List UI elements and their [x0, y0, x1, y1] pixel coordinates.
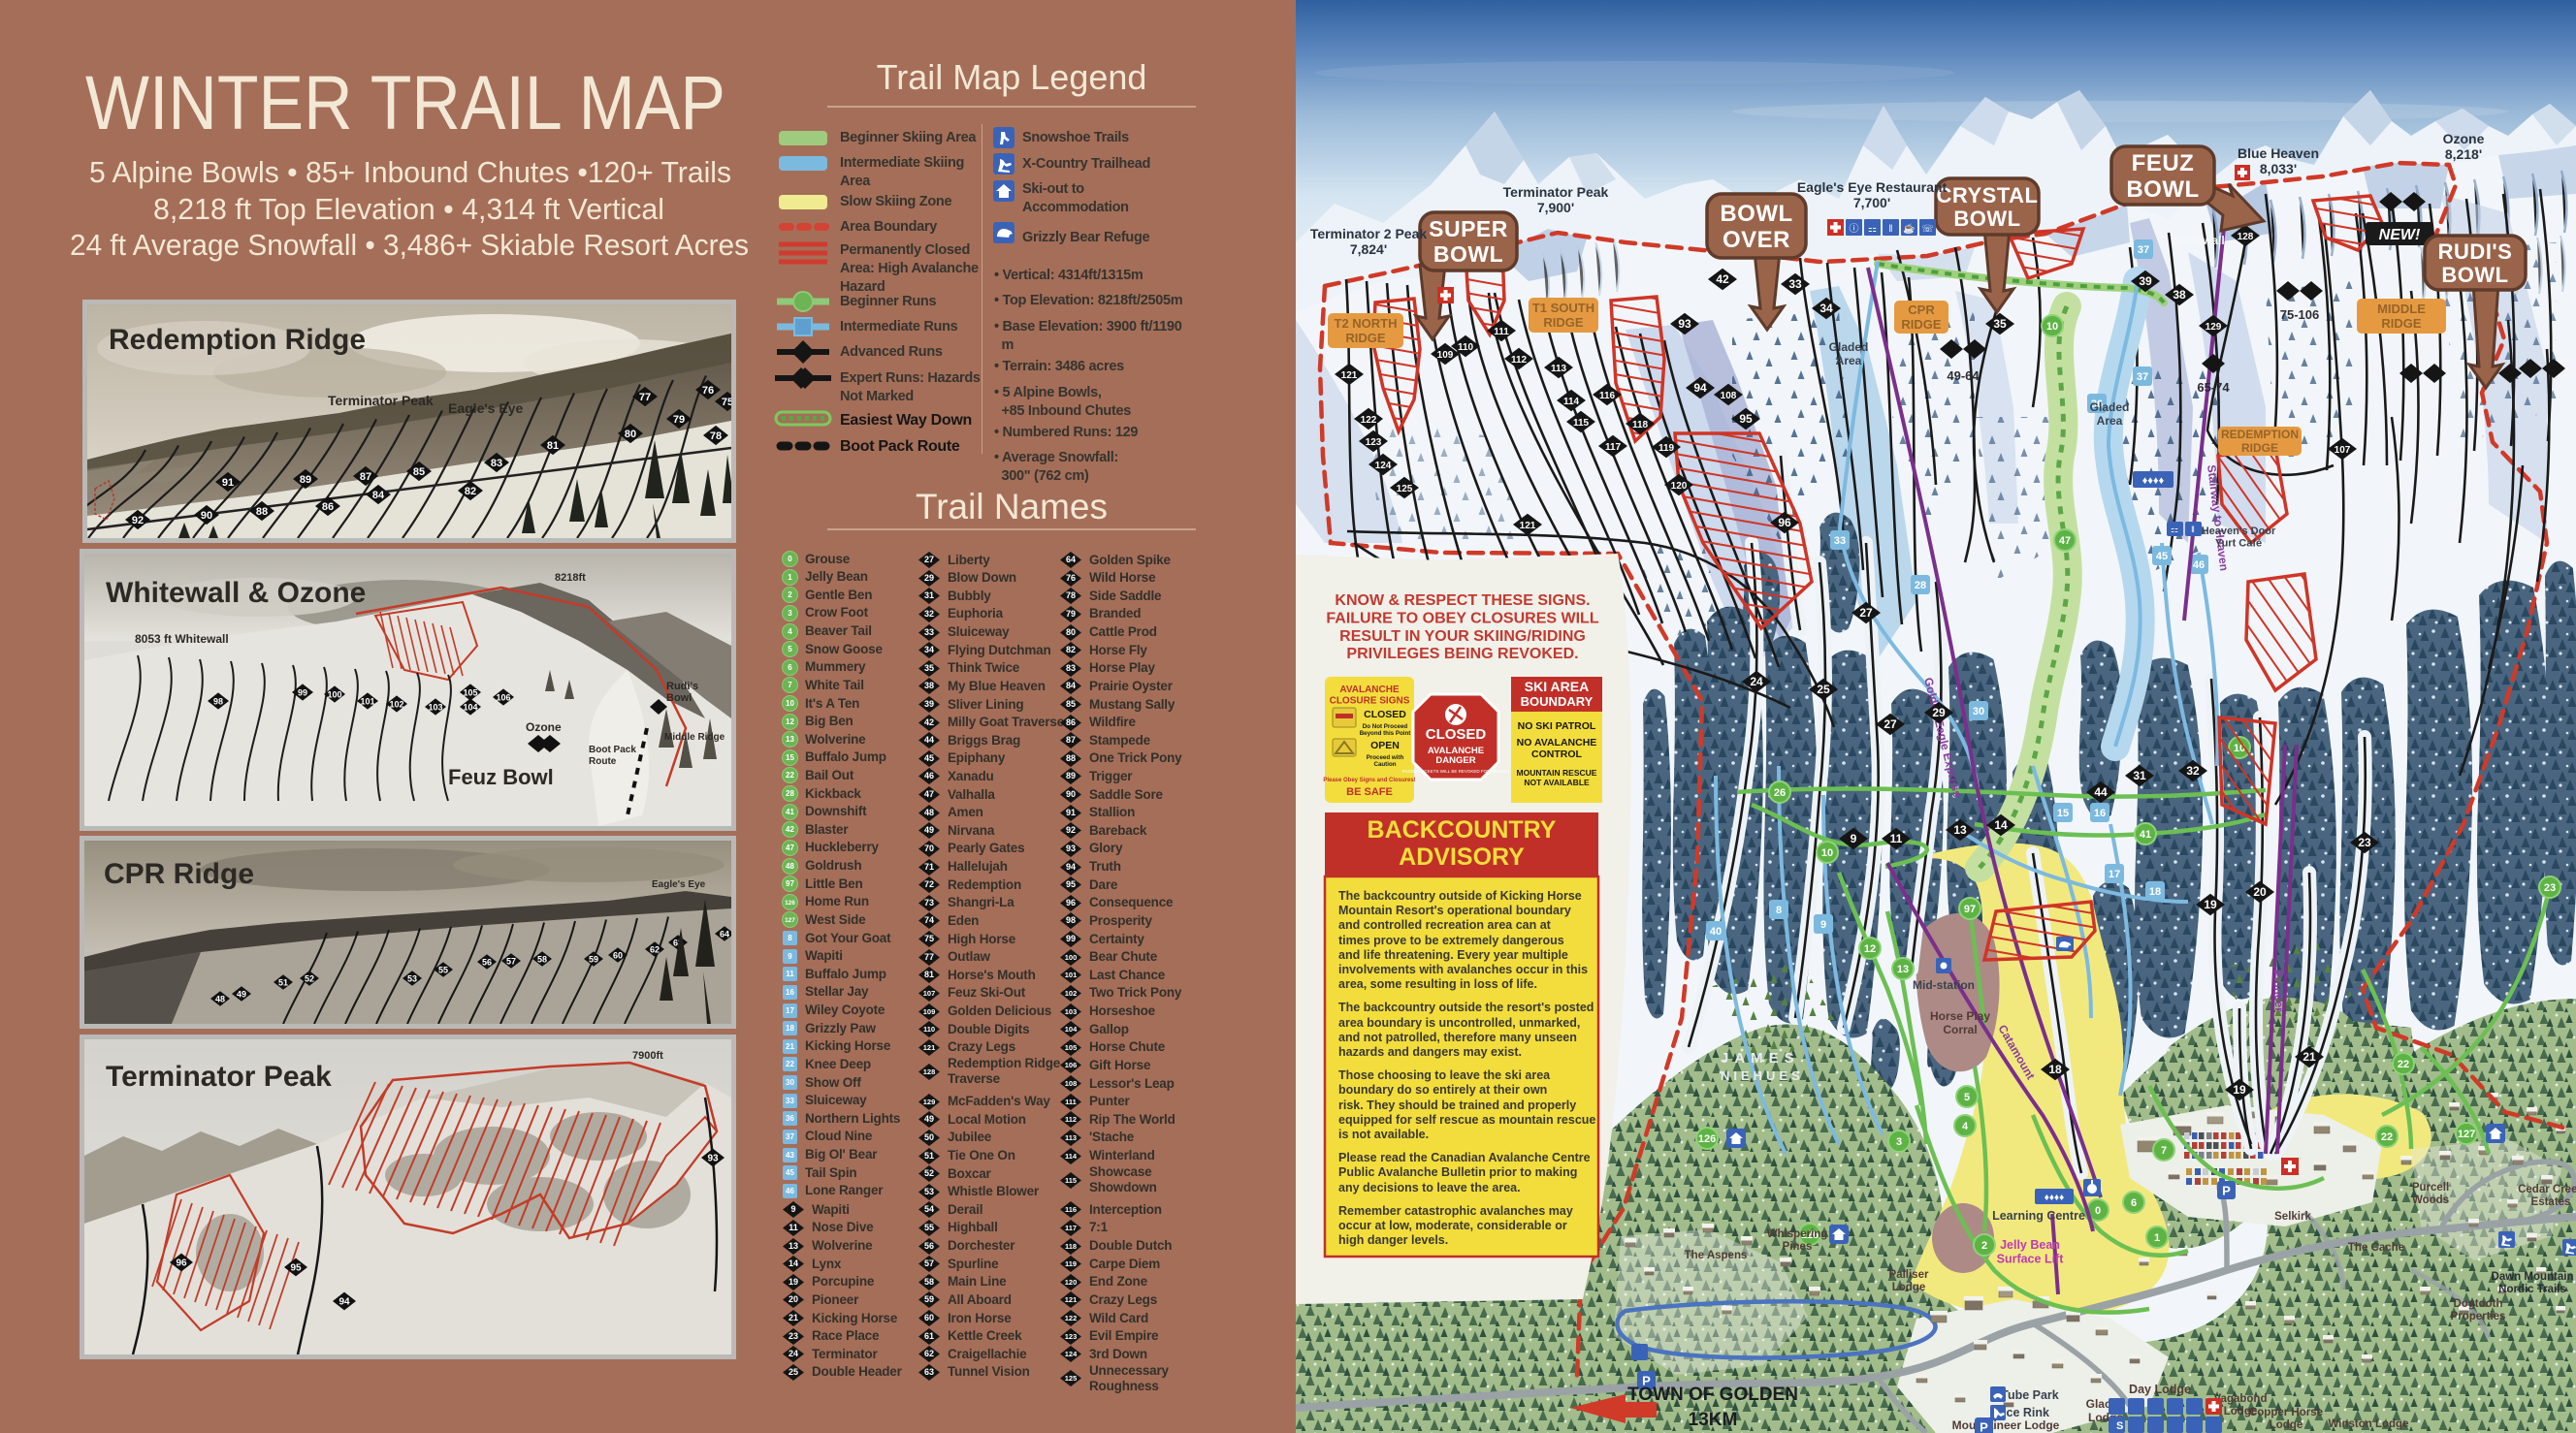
svg-text:Beyond this Point: Beyond this Point — [1360, 730, 1411, 737]
svg-text:125: 125 — [1065, 1375, 1078, 1384]
svg-text:T2 NORTH: T2 NORTH — [1335, 316, 1398, 331]
svg-text:27: 27 — [924, 555, 934, 564]
svg-text:BE SAFE: BE SAFE — [1346, 786, 1393, 798]
svg-text:80: 80 — [625, 429, 636, 440]
svg-text:Eagle's Eye: Eagle's Eye — [448, 400, 523, 416]
svg-text:65-74: 65-74 — [2197, 380, 2230, 395]
svg-text:29: 29 — [924, 573, 934, 583]
svg-text:89: 89 — [1066, 772, 1076, 781]
svg-text:Eagle's Eye Restaurant: Eagle's Eye Restaurant — [1797, 179, 1948, 195]
svg-text:8: 8 — [788, 934, 792, 942]
svg-text:Whitewall: Whitewall — [2171, 234, 2224, 247]
svg-text:NIEHUES: NIEHUES — [1721, 1068, 1804, 1083]
svg-text:45: 45 — [2156, 551, 2168, 562]
svg-text:106: 106 — [1065, 1062, 1078, 1070]
svg-text:91: 91 — [1066, 808, 1076, 817]
svg-text:ADVISORY: ADVISORY — [1399, 844, 1525, 871]
svg-text:BOWL: BOWL — [1720, 201, 1792, 227]
svg-text:64: 64 — [1066, 555, 1076, 564]
svg-text:high danger levels.: high danger levels. — [1338, 1233, 1448, 1247]
svg-text:123: 123 — [1366, 437, 1382, 448]
svg-text:82: 82 — [1066, 645, 1076, 654]
svg-text:CRYSTAL: CRYSTAL — [1937, 183, 2039, 207]
svg-text:29: 29 — [1932, 706, 1946, 719]
svg-text:21: 21 — [2302, 1050, 2316, 1064]
svg-text:114: 114 — [1563, 397, 1580, 407]
svg-text:115: 115 — [1065, 1176, 1077, 1185]
svg-text:115: 115 — [1573, 418, 1590, 429]
svg-text:57: 57 — [506, 956, 516, 966]
svg-text:NO AVALANCHE: NO AVALANCHE — [1517, 737, 1597, 748]
svg-text:126: 126 — [785, 900, 795, 907]
svg-text:Remember catastrophic avalanch: Remember catastrophic avalanches may — [1338, 1204, 1573, 1218]
svg-text:27: 27 — [1859, 606, 1873, 620]
svg-text:85: 85 — [1066, 699, 1076, 709]
svg-text:18: 18 — [786, 1024, 794, 1033]
svg-text:⚏: ⚏ — [1868, 224, 1877, 235]
svg-text:107: 107 — [923, 989, 936, 998]
svg-text:Heaven's Door: Heaven's Door — [2202, 525, 2276, 537]
svg-text:Horse Play: Horse Play — [1930, 1009, 1990, 1023]
svg-text:24 ft Average Snowfall • 3,486: 24 ft Average Snowfall • 3,486+ Skiable … — [70, 228, 749, 262]
svg-text:and not patrolled, therefore m: and not patrolled, therefore many unseen — [1338, 1031, 1577, 1044]
svg-text:84: 84 — [372, 490, 385, 501]
svg-text:32: 32 — [2186, 764, 2200, 778]
svg-text:Blue Heaven: Blue Heaven — [2238, 145, 2319, 161]
svg-text:Tube Park: Tube Park — [2001, 1388, 2059, 1402]
svg-text:16: 16 — [2094, 808, 2106, 819]
svg-text:Please Obey Signs and Closures: Please Obey Signs and Closures! — [1323, 778, 1415, 783]
svg-text:42: 42 — [786, 825, 794, 834]
svg-text:BOWL: BOWL — [2126, 176, 2199, 203]
svg-text:21: 21 — [786, 1042, 794, 1051]
svg-text:123: 123 — [1065, 1332, 1078, 1341]
svg-text:The backcountry outside of Kic: The backcountry outside of Kicking Horse — [1338, 889, 1582, 903]
svg-text:40: 40 — [1710, 926, 1722, 938]
svg-text:Corral: Corral — [1943, 1023, 1977, 1036]
svg-text:20: 20 — [789, 1295, 798, 1305]
svg-text:93: 93 — [707, 1154, 719, 1164]
svg-text:Pines: Pines — [1783, 1241, 1813, 1253]
svg-text:82: 82 — [465, 486, 476, 497]
svg-text:92: 92 — [1066, 825, 1076, 835]
svg-text:RIDGE: RIDGE — [1543, 315, 1584, 330]
svg-text:83: 83 — [1066, 663, 1076, 673]
svg-text:121: 121 — [1065, 1296, 1078, 1305]
svg-text:11: 11 — [1890, 832, 1903, 845]
svg-text:116: 116 — [1065, 1205, 1077, 1214]
svg-text:Terminator Peak: Terminator Peak — [1503, 184, 1609, 200]
svg-text:11: 11 — [786, 970, 794, 978]
svg-text:♦♦♦♦: ♦♦♦♦ — [2045, 1193, 2064, 1203]
svg-text:risk. They should be trained a: risk. They should be trained and properl… — [1338, 1099, 1576, 1112]
svg-text:27: 27 — [1884, 717, 1897, 731]
svg-text:10: 10 — [1821, 847, 1833, 859]
svg-text:boundary do so entirely at the: boundary do so entirely at their own — [1338, 1083, 1547, 1097]
svg-text:26: 26 — [1774, 787, 1786, 799]
svg-text:109: 109 — [1437, 350, 1454, 361]
svg-text:94: 94 — [1693, 381, 1707, 395]
svg-text:45: 45 — [924, 753, 934, 763]
svg-text:76: 76 — [702, 385, 714, 397]
svg-text:121: 121 — [1520, 521, 1536, 531]
svg-text:Terminator Peak: Terminator Peak — [106, 1061, 332, 1093]
svg-text:109: 109 — [923, 1007, 936, 1016]
svg-text:Properties: Properties — [2451, 1311, 2506, 1322]
svg-text:Public Avalanche Bulletin prio: Public Avalanche Bulletin prior to makin… — [1338, 1165, 1577, 1179]
svg-text:77: 77 — [924, 952, 934, 962]
svg-text:7,900': 7,900' — [1537, 200, 1574, 215]
svg-text:28: 28 — [1915, 580, 1926, 591]
svg-text:53: 53 — [407, 973, 417, 983]
svg-text:104: 104 — [463, 702, 477, 712]
svg-text:110: 110 — [1458, 342, 1474, 353]
svg-text:Dawn Mountain: Dawn Mountain — [2492, 1271, 2574, 1283]
svg-text:OVER: OVER — [1723, 227, 1790, 253]
svg-text:124: 124 — [1375, 461, 1392, 471]
svg-text:and life threatening. Every ye: and life threatening. Every year multipl… — [1338, 948, 1568, 962]
svg-text:equipped for self rescue as mo: equipped for self rescue as mountain res… — [1338, 1113, 1595, 1127]
svg-text:87: 87 — [360, 471, 371, 483]
svg-text:30: 30 — [786, 1078, 794, 1087]
svg-text:35: 35 — [924, 663, 934, 673]
svg-text:Ice Rink: Ice Rink — [2003, 1406, 2049, 1419]
svg-text:DANGER: DANGER — [1435, 755, 1475, 766]
svg-text:42: 42 — [924, 717, 934, 727]
svg-text:18: 18 — [2149, 886, 2161, 898]
svg-text:118: 118 — [1065, 1242, 1077, 1251]
svg-text:46: 46 — [786, 1187, 794, 1195]
svg-text:108: 108 — [1065, 1079, 1078, 1088]
svg-text:0: 0 — [2095, 1205, 2101, 1217]
svg-text:53: 53 — [924, 1187, 934, 1196]
svg-text:RUDI'S: RUDI'S — [2438, 239, 2513, 264]
svg-text:KNOW & RESPECT THESE SIGNS.: KNOW & RESPECT THESE SIGNS. — [1335, 592, 1590, 609]
svg-text:121: 121 — [1341, 370, 1358, 381]
svg-text:95: 95 — [290, 1263, 302, 1274]
svg-text:BOWL: BOWL — [1953, 207, 2020, 231]
svg-text:22: 22 — [2381, 1131, 2393, 1143]
svg-text:104: 104 — [1065, 1025, 1078, 1034]
svg-text:60: 60 — [613, 950, 623, 960]
svg-text:126: 126 — [1698, 1133, 1716, 1145]
svg-text:94: 94 — [1066, 862, 1076, 872]
svg-text:49: 49 — [924, 1114, 934, 1124]
svg-text:CPR: CPR — [1908, 303, 1935, 317]
svg-text:13: 13 — [1953, 823, 1967, 837]
svg-text:56: 56 — [924, 1241, 934, 1251]
svg-text:3: 3 — [1896, 1136, 1902, 1148]
svg-text:48: 48 — [924, 808, 934, 817]
svg-text:41: 41 — [786, 808, 794, 816]
svg-text:The Cache: The Cache — [2348, 1242, 2404, 1254]
svg-text:22: 22 — [786, 1061, 794, 1069]
svg-text:Terminator Peak: Terminator Peak — [328, 393, 434, 408]
svg-text:8053 ft Whitewall: 8053 ft Whitewall — [135, 632, 229, 646]
svg-text:Terminator 2 Peak: Terminator 2 Peak — [1310, 226, 1428, 241]
svg-text:involvements with avalanches o: involvements with avalanches occur in th… — [1338, 963, 1588, 976]
svg-text:BACKCOUNTRY: BACKCOUNTRY — [1368, 816, 1557, 844]
svg-text:88: 88 — [1066, 753, 1076, 763]
svg-text:36: 36 — [786, 1114, 794, 1123]
svg-text:5: 5 — [1964, 1092, 1970, 1103]
svg-text:Bowl: Bowl — [666, 692, 692, 704]
svg-text:CLOSED: CLOSED — [1364, 709, 1406, 720]
svg-text:8,218 ft Top Elevation • 4,31: 8,218 ft Top Elevation • 4,314 ft Vertic… — [153, 192, 664, 226]
svg-text:103: 103 — [1065, 1007, 1078, 1016]
svg-text:75: 75 — [924, 934, 934, 943]
svg-text:128: 128 — [923, 1067, 936, 1076]
svg-text:Purcell: Purcell — [2412, 1182, 2449, 1194]
svg-text:T1 SOUTH: T1 SOUTH — [1532, 301, 1594, 315]
svg-text:43: 43 — [786, 1151, 794, 1160]
svg-text:Mountain Resort's operational: Mountain Resort's operational boundary — [1338, 904, 1571, 917]
svg-text:Woods: Woods — [2412, 1194, 2449, 1206]
svg-text:50: 50 — [924, 1132, 934, 1142]
svg-text:73: 73 — [924, 898, 934, 908]
svg-text:33: 33 — [924, 627, 934, 637]
svg-text:55: 55 — [924, 1223, 934, 1232]
svg-text:FEUZ: FEUZ — [2132, 150, 2195, 176]
svg-text:98: 98 — [213, 696, 223, 706]
svg-text:Dogtooth: Dogtooth — [2453, 1298, 2502, 1310]
svg-text:times prove to be extremely da: times prove to be extremely dangerous — [1338, 934, 1564, 947]
svg-text:122: 122 — [1065, 1314, 1078, 1322]
svg-text:100: 100 — [327, 689, 341, 699]
svg-text:34: 34 — [1819, 302, 1833, 315]
svg-text:area boundary is uncontrolled,: area boundary is uncontrolled, unmarked, — [1338, 1016, 1580, 1030]
svg-text:8,033': 8,033' — [2260, 161, 2297, 176]
svg-text:33: 33 — [1834, 535, 1846, 547]
svg-text:84: 84 — [1066, 681, 1076, 690]
svg-text:15: 15 — [786, 753, 794, 762]
svg-text:6: 6 — [2131, 1197, 2137, 1209]
svg-text:116: 116 — [1599, 391, 1616, 401]
svg-text:111: 111 — [1494, 327, 1509, 337]
svg-text:83: 83 — [491, 458, 502, 469]
svg-text:95: 95 — [1066, 879, 1076, 889]
svg-text:92: 92 — [132, 515, 144, 526]
svg-text:12: 12 — [786, 717, 794, 726]
svg-text:34: 34 — [924, 645, 934, 654]
svg-text:58: 58 — [924, 1277, 934, 1287]
svg-text:93: 93 — [1066, 844, 1076, 853]
svg-text:86: 86 — [1066, 717, 1076, 727]
svg-text:BOWL: BOWL — [2441, 263, 2508, 287]
svg-text:78: 78 — [1066, 590, 1076, 600]
svg-text:129: 129 — [923, 1098, 936, 1106]
svg-text:7,700': 7,700' — [1853, 195, 1890, 210]
svg-text:47: 47 — [2059, 535, 2071, 547]
svg-text:48: 48 — [786, 862, 794, 871]
svg-text:Do Not Proceed: Do Not Proceed — [1363, 723, 1408, 730]
svg-text:30: 30 — [1973, 706, 1984, 717]
svg-text:Lodge: Lodge — [1892, 1282, 1926, 1293]
svg-text:5: 5 — [788, 645, 792, 653]
svg-text:‖: ‖ — [2191, 525, 2195, 534]
svg-text:SUPER: SUPER — [1429, 216, 1508, 241]
svg-text:37: 37 — [786, 1132, 794, 1141]
svg-text:is not available.: is not available. — [1338, 1128, 1429, 1141]
svg-text:95: 95 — [1739, 412, 1753, 426]
svg-text:46: 46 — [924, 772, 934, 781]
svg-text:13: 13 — [786, 735, 794, 744]
svg-text:118: 118 — [1632, 420, 1649, 430]
svg-text:Please read the Canadian Avala: Please read the Canadian Avalanche Centr… — [1338, 1151, 1591, 1164]
svg-text:97: 97 — [786, 879, 794, 888]
svg-text:Feuz Bowl: Feuz Bowl — [448, 765, 554, 789]
svg-text:‖: ‖ — [1888, 224, 1892, 235]
svg-text:47: 47 — [924, 789, 934, 799]
svg-text:7: 7 — [788, 681, 792, 689]
svg-text:81: 81 — [547, 440, 559, 452]
svg-text:127: 127 — [2458, 1129, 2475, 1140]
svg-text:112: 112 — [1511, 355, 1528, 366]
svg-text:100: 100 — [1065, 953, 1078, 962]
svg-text:117: 117 — [1605, 442, 1622, 453]
svg-text:101: 101 — [360, 696, 374, 706]
svg-text:99: 99 — [1066, 934, 1076, 943]
svg-text:52: 52 — [305, 973, 314, 983]
svg-text:6: 6 — [788, 663, 792, 672]
svg-text:1: 1 — [788, 573, 792, 582]
svg-text:28: 28 — [786, 789, 794, 798]
svg-text:61: 61 — [924, 1331, 934, 1341]
svg-text:48: 48 — [215, 994, 225, 1003]
svg-text:10: 10 — [786, 699, 794, 708]
svg-text:NEW!: NEW! — [2379, 227, 2421, 243]
svg-text:RIDGE: RIDGE — [2241, 441, 2278, 455]
svg-text:Lodge: Lodge — [2270, 1419, 2303, 1431]
svg-text:58: 58 — [537, 954, 547, 964]
svg-text:Area: Area — [2097, 414, 2123, 428]
svg-text:113: 113 — [1065, 1133, 1077, 1142]
svg-text:45: 45 — [786, 1168, 794, 1177]
svg-text:37: 37 — [2137, 371, 2148, 383]
svg-text:♦♦♦♦: ♦♦♦♦ — [2142, 475, 2165, 487]
svg-text:TOWN OF GOLDEN: TOWN OF GOLDEN — [1627, 1385, 1798, 1405]
svg-text:RIDGE: RIDGE — [2381, 316, 2422, 331]
svg-text:91: 91 — [222, 477, 234, 489]
svg-text:113: 113 — [1551, 364, 1567, 374]
svg-text:Boot Pack: Boot Pack — [589, 745, 636, 755]
svg-text:☏: ☏ — [1921, 224, 1934, 235]
svg-text:119: 119 — [1065, 1259, 1077, 1268]
svg-text:49: 49 — [237, 989, 246, 999]
svg-text:105: 105 — [463, 687, 477, 697]
svg-text:94: 94 — [338, 1297, 350, 1308]
svg-text:51: 51 — [924, 1151, 934, 1161]
svg-text:117: 117 — [1065, 1224, 1077, 1232]
svg-text:2: 2 — [1981, 1240, 1987, 1252]
svg-text:Those choosing to leave the sk: Those choosing to leave the ski area — [1338, 1068, 1551, 1082]
svg-text:60: 60 — [924, 1313, 934, 1322]
svg-text:Whispering: Whispering — [1767, 1228, 1828, 1240]
svg-text:PASSES/TICKETS WILL BE REVOKED: PASSES/TICKETS WILL BE REVOKED FOR BREAC… — [1402, 769, 1510, 774]
svg-text:120: 120 — [1671, 481, 1688, 492]
svg-text:Whitewall & Ozone: Whitewall & Ozone — [106, 577, 366, 609]
svg-text:18: 18 — [2048, 1063, 2062, 1076]
svg-text:P: P — [1980, 1420, 1988, 1433]
svg-text:127: 127 — [785, 918, 795, 925]
svg-text:57: 57 — [924, 1258, 934, 1268]
svg-text:46: 46 — [2193, 559, 2205, 571]
svg-text:75: 75 — [722, 397, 731, 408]
svg-text:22: 22 — [786, 772, 794, 780]
svg-text:80: 80 — [1066, 627, 1076, 637]
svg-text:Area: Area — [1836, 354, 1862, 367]
svg-text:35: 35 — [1993, 317, 2007, 331]
svg-text:9: 9 — [788, 952, 792, 961]
svg-text:96: 96 — [1066, 898, 1076, 908]
svg-text:125: 125 — [1397, 484, 1413, 494]
svg-text:63: 63 — [924, 1367, 934, 1377]
svg-text:NOT AVAILABLE: NOT AVAILABLE — [1524, 778, 1590, 787]
svg-text:19: 19 — [2233, 1083, 2246, 1097]
svg-text:107: 107 — [2334, 445, 2351, 456]
svg-text:79: 79 — [673, 414, 685, 426]
svg-text:The Aspens: The Aspens — [1685, 1250, 1748, 1261]
svg-text:21: 21 — [789, 1313, 798, 1322]
svg-text:102: 102 — [389, 699, 403, 709]
svg-text:Mountaineer Lodge: Mountaineer Lodge — [1952, 1418, 2060, 1432]
svg-text:110: 110 — [923, 1025, 935, 1034]
svg-text:128: 128 — [2238, 232, 2254, 242]
svg-text:Proceed with: Proceed with — [1367, 754, 1404, 761]
svg-text:129: 129 — [2206, 322, 2222, 333]
svg-text:RIDGE: RIDGE — [1901, 317, 1942, 332]
svg-text:Selkirk: Selkirk — [2274, 1211, 2311, 1223]
svg-text:51: 51 — [278, 977, 288, 987]
svg-text:59: 59 — [589, 954, 598, 964]
svg-text:5 Alpine Bowls • 85+ Inbound C: 5 Alpine Bowls • 85+ Inbound Chutes •120… — [89, 155, 731, 189]
svg-text:Surface Lift: Surface Lift — [1997, 1252, 2065, 1265]
svg-text:55: 55 — [438, 965, 448, 974]
svg-text:Trail Names: Trail Names — [916, 487, 1108, 526]
svg-text:8,218': 8,218' — [2445, 146, 2482, 162]
svg-text:JAMES: JAMES — [1721, 1050, 1800, 1067]
svg-text:PRIVILEGES BEING REVOKED.: PRIVILEGES BEING REVOKED. — [1346, 646, 1578, 662]
svg-text:76: 76 — [1066, 573, 1076, 583]
svg-text:56: 56 — [482, 957, 492, 967]
svg-text:9: 9 — [1851, 832, 1857, 845]
svg-text:96: 96 — [176, 1258, 187, 1269]
svg-text:75-106: 75-106 — [2280, 307, 2319, 322]
svg-text:Learning Centre: Learning Centre — [1992, 1209, 2085, 1223]
svg-text:89: 89 — [300, 474, 311, 486]
svg-text:19: 19 — [789, 1277, 798, 1287]
svg-text:44: 44 — [2094, 785, 2108, 799]
svg-text:120: 120 — [1065, 1278, 1078, 1287]
svg-text:87: 87 — [1066, 735, 1076, 745]
svg-text:Gladed: Gladed — [1829, 340, 1869, 354]
svg-text:and controlled recreation area: and controlled recreation area can at — [1338, 918, 1552, 932]
svg-text:14: 14 — [789, 1258, 798, 1268]
svg-text:112: 112 — [1065, 1115, 1077, 1124]
svg-text:7: 7 — [2161, 1145, 2167, 1157]
svg-text:25: 25 — [1817, 683, 1830, 696]
svg-text:13: 13 — [1897, 964, 1909, 975]
svg-text:31: 31 — [924, 590, 934, 600]
svg-text:☕: ☕ — [1903, 222, 1915, 235]
svg-text:Rudi's: Rudi's — [666, 681, 698, 692]
svg-text:12: 12 — [1864, 943, 1876, 955]
svg-text:11: 11 — [789, 1223, 798, 1232]
svg-text:122: 122 — [1361, 415, 1377, 426]
svg-text:88: 88 — [256, 506, 268, 518]
svg-text:98: 98 — [1066, 916, 1076, 926]
svg-text:23: 23 — [2358, 836, 2371, 849]
